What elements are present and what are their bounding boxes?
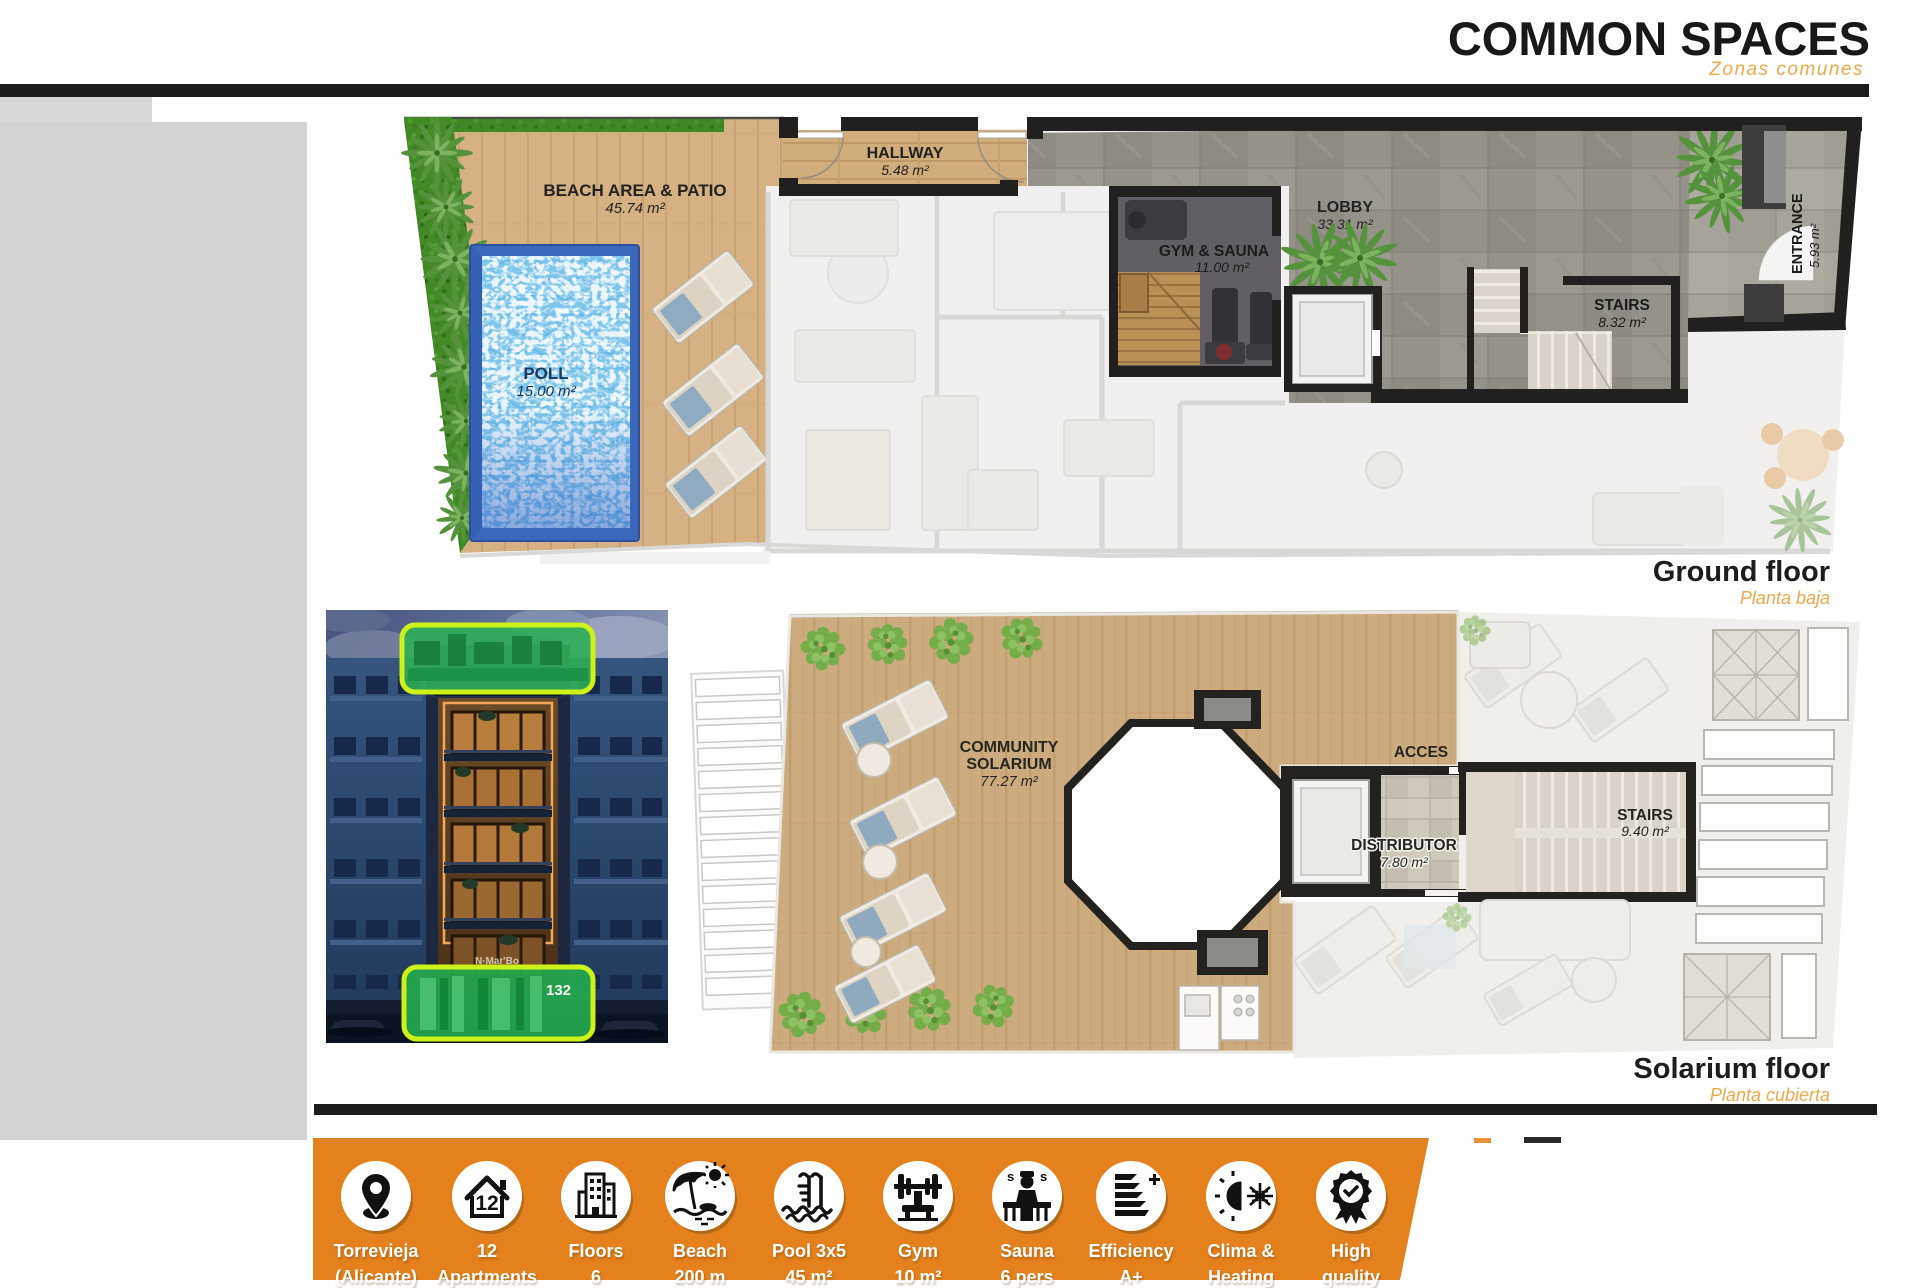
- svg-text:LOBBY: LOBBY: [1317, 199, 1373, 216]
- svg-text:45.74 m²: 45.74 m²: [605, 200, 665, 217]
- svg-text:STAIRS: STAIRS: [1617, 807, 1673, 824]
- svg-text:GYM & SAUNA: GYM & SAUNA: [1159, 243, 1269, 260]
- svg-text:132: 132: [546, 982, 571, 999]
- svg-text:DISTRIBUTOR: DISTRIBUTOR: [1351, 837, 1457, 854]
- svg-text:COMMUNITY: COMMUNITY: [960, 739, 1059, 756]
- svg-text:5.93 m²: 5.93 m²: [1807, 223, 1822, 268]
- svg-text:8.32 m²: 8.32 m²: [1598, 314, 1647, 330]
- svg-text:STAIRS: STAIRS: [1594, 297, 1650, 314]
- svg-text:5.48 m²: 5.48 m²: [881, 162, 930, 178]
- svg-text:11.00 m²: 11.00 m²: [1195, 259, 1251, 275]
- svg-text:7.80 m²: 7.80 m²: [1380, 854, 1429, 870]
- svg-text:12: 12: [475, 1192, 498, 1215]
- svg-text:s: s: [1040, 1169, 1047, 1184]
- svg-text:HALLWAY: HALLWAY: [867, 145, 944, 162]
- svg-text:BEACH AREA & PATIO: BEACH AREA & PATIO: [543, 181, 726, 200]
- svg-text:ENTRANCE: ENTRANCE: [1790, 193, 1806, 274]
- svg-text:SOLARIUM: SOLARIUM: [966, 756, 1051, 773]
- svg-text:POLL: POLL: [523, 364, 568, 383]
- svg-text:9.40 m²: 9.40 m²: [1621, 823, 1670, 839]
- svg-text:77.27 m²: 77.27 m²: [980, 774, 1038, 790]
- svg-text:s: s: [1007, 1169, 1014, 1184]
- svg-text:15.00 m²: 15.00 m²: [516, 383, 576, 400]
- svg-text:ACCES: ACCES: [1394, 744, 1448, 761]
